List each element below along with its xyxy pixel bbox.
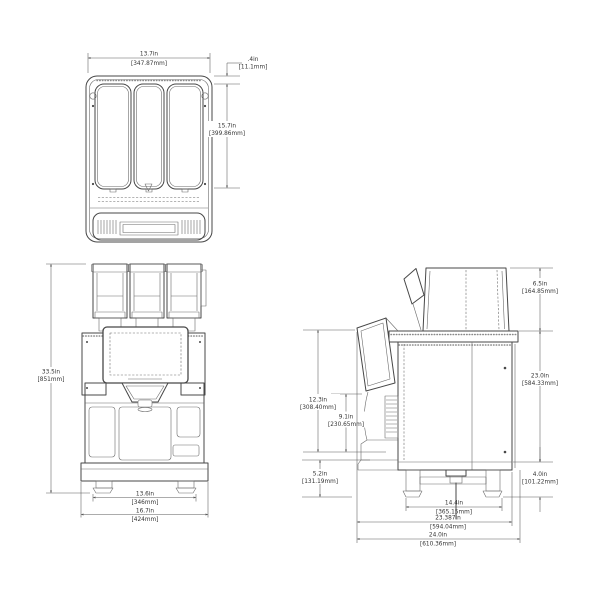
dim-side-foot-span-in: 14.4in <box>445 501 464 507</box>
dim-label-base-height: 4.0in [101.22mm] <box>522 472 558 486</box>
dim-label-top-depth: 15.7in [399.86mm] <box>204 121 250 137</box>
dim-label-lower-front-height: 5.2in [131.19mm] <box>299 469 341 485</box>
technical-drawing-canvas: 13.7in [347.87mm] .4in [11.1mm] 15.7in [… <box>0 0 600 600</box>
dim-base-height-in: 4.0in <box>533 472 548 478</box>
dim-front-panel-height-mm: [308.40mm] <box>300 405 336 411</box>
dim-dispense-height-in: 9.1in <box>339 415 354 421</box>
dim-label-front-foot-span: 13.6in [346mm] <box>132 492 159 507</box>
side-touchscreen <box>357 318 398 391</box>
side-view-body <box>357 268 518 519</box>
dim-label-side-foot-span: 14.4in [365.15mm] <box>436 501 472 516</box>
dim-overall-depth-in: 24.0in <box>429 533 448 539</box>
dim-front-panel-height-in: 12.3in <box>309 398 328 404</box>
dim-cabinet-height-in: 23.0in <box>531 374 550 380</box>
dim-dispense-height-mm: [230.65mm] <box>328 422 364 428</box>
dim-lower-front-height-mm: [131.19mm] <box>302 479 338 485</box>
dim-label-lid-offset: .4in [11.1mm] <box>239 57 268 71</box>
dim-label-front-panel-height: 12.3in [308.40mm] <box>296 394 340 411</box>
side-view: 6.5in [164.85mm] 23.0in [584.33mm] 4.0in… <box>296 268 561 548</box>
front-touchscreen <box>103 327 188 383</box>
dim-label-body-depth: 23.387in [594.04mm] <box>430 516 466 531</box>
dim-label-cabinet-height: 23.0in [584.33mm] <box>519 371 561 387</box>
dim-label-overall-depth: 24.0in [610.36mm] <box>420 533 456 548</box>
dim-overall-depth-mm: [610.36mm] <box>420 542 456 548</box>
dim-top-width-in: 13.7in <box>140 52 159 58</box>
dim-base-height-mm: [101.22mm] <box>522 480 558 486</box>
top-view: 13.7in [347.87mm] .4in [11.1mm] 15.7in [… <box>86 52 267 243</box>
dim-top-width-mm: [347.87mm] <box>131 61 167 67</box>
dim-front-height-in: 33.5in <box>42 370 61 376</box>
dim-top-depth-in: 15.7in <box>218 124 237 130</box>
dim-label-hopper-height: 6.5in [164.85mm] <box>521 278 561 295</box>
dim-body-depth-in: 23.387in <box>435 516 461 522</box>
dim-top-depth-mm: [399.86mm] <box>209 131 245 137</box>
dim-label-front-height: 33.5in [851mm] <box>29 367 73 383</box>
front-view: 33.5in [851mm] 13.6in [346mm] 16.7in [42… <box>29 264 208 523</box>
side-dispense-area <box>358 392 398 470</box>
top-view-body <box>86 76 212 242</box>
front-view-body <box>81 264 208 493</box>
dim-label-top-width: 13.7in [347.87mm] <box>131 52 167 68</box>
dim-front-height-mm: [851mm] <box>38 377 65 383</box>
dim-lower-front-height-in: 5.2in <box>313 472 328 478</box>
dim-front-width-mm: [424mm] <box>132 517 159 523</box>
dim-front-foot-span-mm: [346mm] <box>132 500 159 506</box>
side-view-dimensions: 6.5in [164.85mm] 23.0in [584.33mm] 4.0in… <box>296 268 561 548</box>
top-view-dimensions: 13.7in [347.87mm] .4in [11.1mm] 15.7in [… <box>88 52 267 189</box>
dim-body-depth-mm: [594.04mm] <box>430 525 466 531</box>
dim-cabinet-height-mm: [584.33mm] <box>522 381 558 387</box>
dim-hopper-height-in: 6.5in <box>533 282 548 288</box>
dim-label-dispense-height: 9.1in [230.65mm] <box>325 412 367 429</box>
dim-lid-offset-mm: [11.1mm] <box>239 65 268 71</box>
dim-front-foot-span-in: 13.6in <box>136 492 155 498</box>
front-hoppers <box>92 264 207 331</box>
dimension-drawing: 13.7in [347.87mm] .4in [11.1mm] 15.7in [… <box>0 0 600 600</box>
dim-lid-offset-in: .4in <box>248 57 259 63</box>
side-hopper <box>404 268 509 331</box>
dim-front-width-in: 16.7in <box>136 509 155 515</box>
dim-label-front-width: 16.7in [424mm] <box>132 509 159 524</box>
dim-hopper-height-mm: [164.85mm] <box>522 289 558 295</box>
